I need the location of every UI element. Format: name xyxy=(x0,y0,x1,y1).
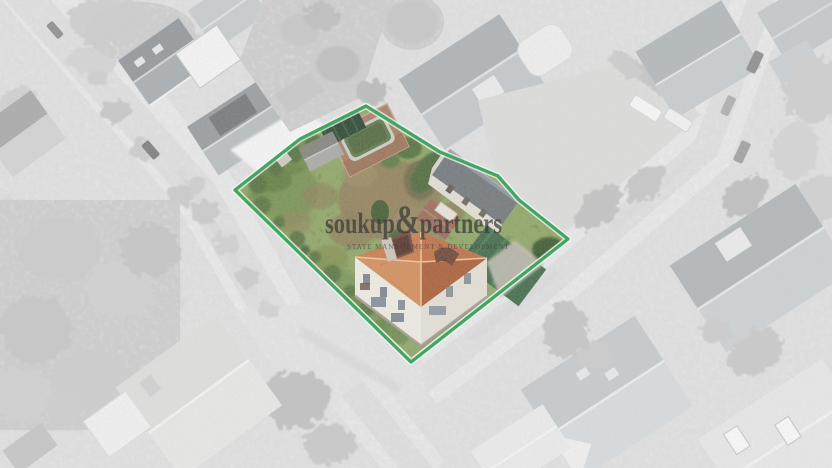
svg-text:STATE MANAGEMENT & DEVELOPMENT: STATE MANAGEMENT & DEVELOPMENT xyxy=(347,243,510,251)
